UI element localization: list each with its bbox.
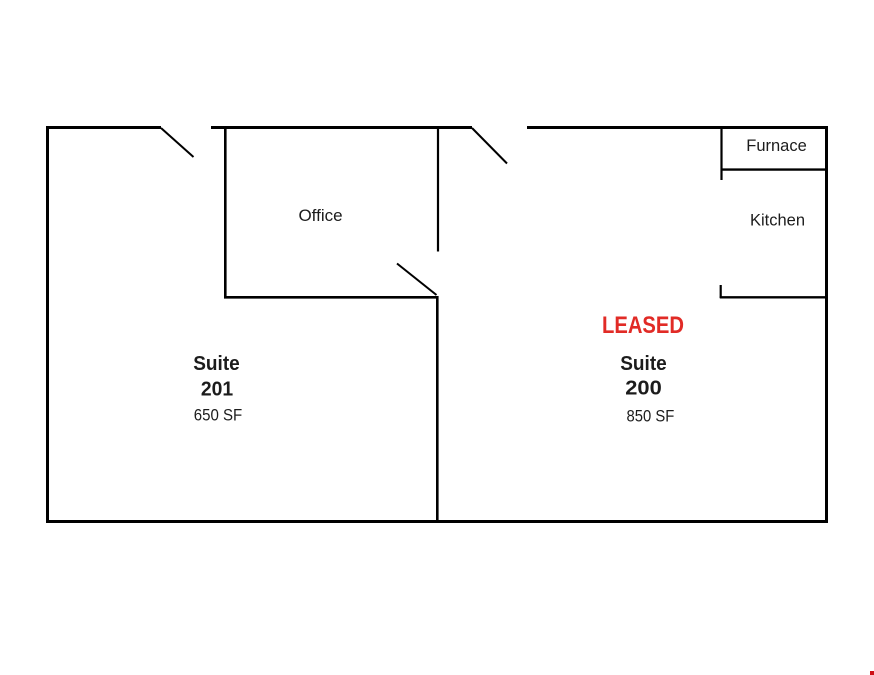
svg-text:650 SF: 650 SF [194, 406, 243, 424]
svg-text:Kitchen: Kitchen [750, 212, 805, 230]
svg-text:LEASED: LEASED [602, 312, 684, 339]
svg-text:200: 200 [625, 378, 662, 400]
svg-text:850 SF: 850 SF [627, 408, 675, 426]
svg-text:201: 201 [201, 379, 233, 401]
svg-text:Suite: Suite [620, 353, 667, 375]
svg-text:Suite: Suite [193, 353, 240, 375]
svg-text:Office: Office [298, 206, 342, 225]
svg-text:Furnace: Furnace [746, 137, 807, 155]
